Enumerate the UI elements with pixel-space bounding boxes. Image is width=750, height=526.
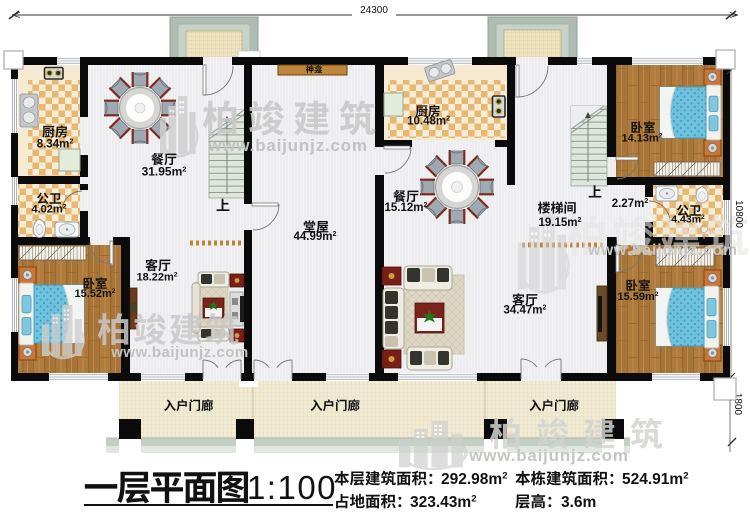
svg-text:10800: 10800 — [733, 200, 744, 228]
svg-text:24300: 24300 — [360, 5, 388, 16]
svg-text:10.48m2: 10.48m2 — [407, 115, 450, 128]
svg-text:15.52m2: 15.52m2 — [74, 288, 115, 300]
svg-text:www.baijunjz.com: www.baijunjz.com — [468, 446, 629, 465]
svg-text:4.02m2: 4.02m2 — [32, 204, 67, 216]
svg-text:31.95m2: 31.95m2 — [142, 164, 187, 178]
svg-text:8.34m2: 8.34m2 — [37, 138, 74, 151]
svg-text:3.6m: 3.6m — [561, 494, 596, 511]
svg-text:www.baijunjz.com: www.baijunjz.com — [207, 136, 368, 155]
svg-text:44.99m2: 44.99m2 — [294, 230, 337, 243]
svg-text:1:100: 1:100 — [247, 469, 337, 506]
svg-text:18.22m2: 18.22m2 — [136, 272, 177, 284]
svg-text:2.27m2: 2.27m2 — [612, 197, 649, 210]
svg-text:15.59m2: 15.59m2 — [617, 291, 658, 303]
svg-text:524.91m2: 524.91m2 — [622, 471, 689, 488]
svg-text:www.baijunjz.com: www.baijunjz.com — [587, 242, 738, 259]
svg-text:34.47m2: 34.47m2 — [504, 304, 547, 317]
svg-text:15.12m2: 15.12m2 — [385, 201, 428, 214]
svg-text:292.98m2: 292.98m2 — [441, 471, 508, 488]
svg-text:14.13m2: 14.13m2 — [621, 133, 662, 145]
svg-text:4.43m2: 4.43m2 — [671, 214, 705, 226]
svg-text:323.43m2: 323.43m2 — [410, 494, 477, 511]
svg-text:www.baijunjz.com: www.baijunjz.com — [110, 344, 248, 361]
svg-text:19.15m2: 19.15m2 — [539, 216, 582, 229]
